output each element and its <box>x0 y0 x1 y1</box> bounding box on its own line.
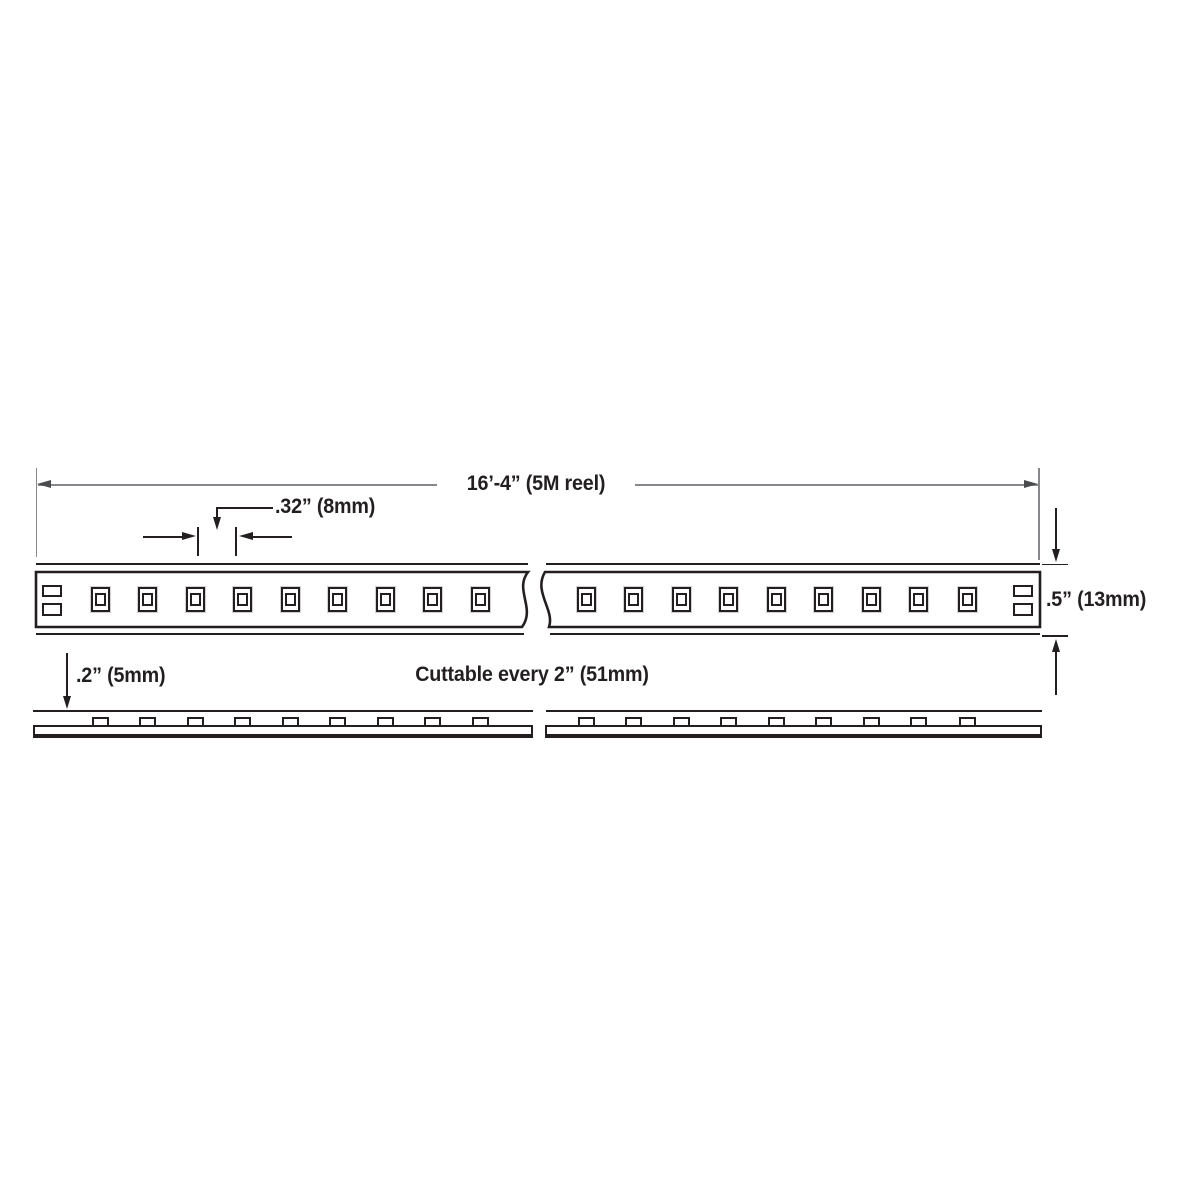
strip-side-view-leds <box>0 0 1200 1200</box>
led-strip-dimension-diagram: 16’-4” (5M reel) .32” (8mm) .5” (13mm) .… <box>0 0 1200 1200</box>
side-view-body-right <box>545 725 1042 738</box>
side-view-body-left <box>33 725 533 738</box>
